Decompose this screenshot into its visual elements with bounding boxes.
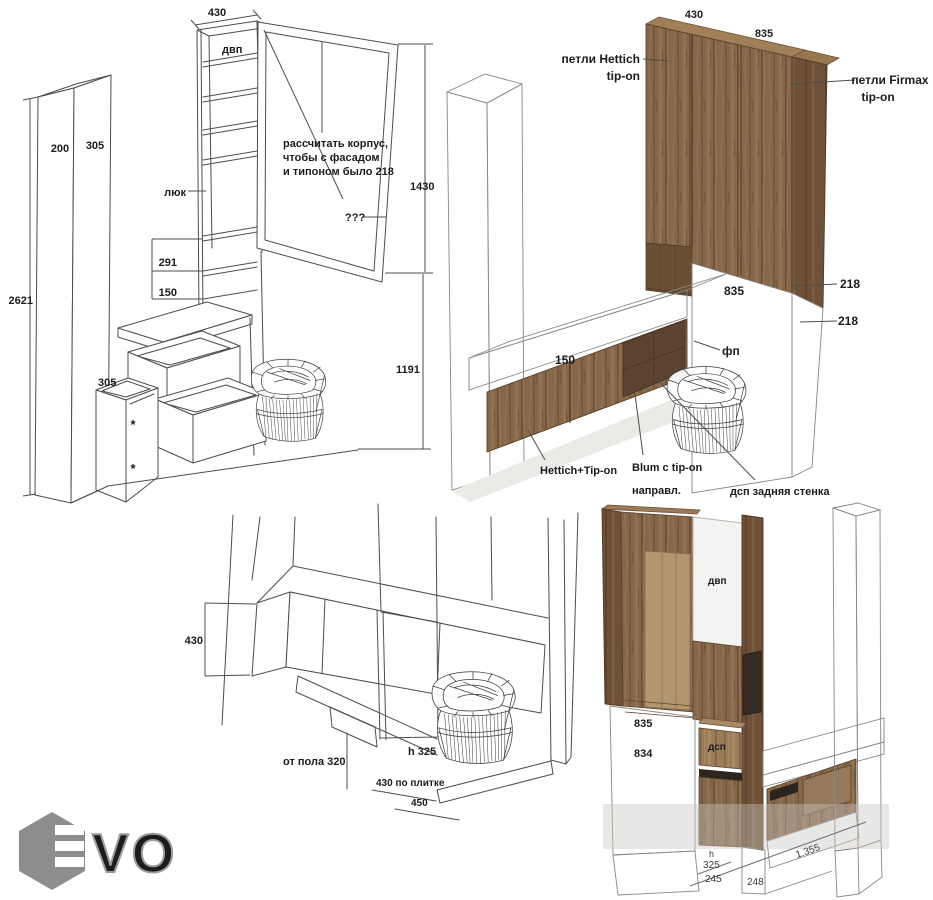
hinge-hettich-line1: петли Hettich (562, 52, 641, 66)
hinge-hettich-line2: tip-on (607, 69, 640, 83)
back-note-label: дсп задняя стенка (730, 486, 830, 498)
dim-150-label: 150 (555, 353, 575, 367)
dim-834-side-label: 834 (634, 748, 653, 760)
view-sketch-front: 430 двп 200 305 люк 2621 291 150 рассчит… (9, 7, 435, 503)
furniture-drawing-sheet: 430 двп 200 305 люк 2621 291 150 рассчит… (0, 0, 933, 900)
dim-218-top-label: 218 (840, 277, 860, 291)
floor-edge (765, 871, 832, 894)
hinge-firmax-line2: tip-on (861, 90, 894, 104)
dim-150-label: 150 (159, 287, 177, 299)
note-line3: и типоном было 218 (283, 166, 394, 178)
dim-305-box-label: 305 (98, 377, 116, 389)
view-render-side: двп 835 834 дсп h 325 245 248 1.355 (602, 503, 889, 897)
dim-218-bottom-label: 218 (838, 314, 858, 328)
dim-430-top-label: 430 (208, 7, 226, 19)
dim-248-label: 248 (747, 877, 764, 888)
toilet-sketch-front (251, 359, 325, 441)
toilet-sketch-bottom (432, 672, 515, 764)
dsp-drawer-label: дсп (708, 742, 726, 753)
logo-e-bar-3 (55, 857, 84, 867)
slide-note-line1: Blum с tip-on (632, 462, 703, 474)
dim-835-top-label: 835 (755, 28, 773, 40)
logo-e-bar-2 (55, 841, 84, 851)
dim-200-label: 200 (51, 143, 69, 155)
h-letter-label: h (709, 849, 714, 859)
dim-2621-label: 2621 (9, 295, 33, 307)
logo-e-bar-1 (55, 825, 84, 835)
board-dvp-label: двп (222, 44, 242, 56)
dim-835-mid-label: 835 (724, 284, 744, 298)
dim-450-label: 450 (411, 798, 428, 809)
evo-logo: VO (19, 812, 177, 890)
dim-305-pillar-label: 305 (86, 140, 104, 152)
note-line1: рассчитать корпус, (283, 138, 388, 150)
tile-level-band (603, 804, 889, 849)
dim-1191-label: 1191 (396, 364, 420, 376)
filler-label: фп (722, 344, 740, 358)
h325-label: h 325 (408, 746, 436, 758)
hinge-firmax-line1: петли Firmax (851, 73, 928, 87)
slide-note-line2: направл. (632, 485, 681, 497)
floor-offset-label: от пола 320 (283, 756, 346, 768)
dim-1430-label: 1430 (410, 181, 434, 193)
dim-430-render-label: 430 (685, 9, 703, 21)
board-dvp-side-label: двп (708, 576, 727, 587)
toilet-render-front (667, 367, 746, 454)
hatch-label: люк (164, 187, 186, 199)
logo-letters: VO (92, 822, 177, 884)
view-render-front: 430 835 петли Hettich tip-on петли Firma… (447, 9, 929, 502)
dim-430-below (205, 603, 256, 676)
hinge-note-label: Hettich+Tip-on (540, 465, 617, 477)
dim-325-label: 325 (703, 860, 720, 871)
wardrobe-render (646, 17, 839, 308)
note-line2: чтобы с фасадом (283, 152, 380, 164)
dim-291-label: 291 (159, 257, 177, 269)
tile-note-label: 430 по плитке (376, 778, 445, 789)
dim-835-side-label: 835 (634, 718, 652, 730)
unknown-label: ??? (345, 212, 365, 224)
shelf-unit-sketch (152, 10, 269, 322)
drawing-canvas: 430 двп 200 305 люк 2621 291 150 рассчит… (0, 0, 933, 900)
dim-245-label: 245 (705, 874, 722, 885)
view-sketch-bottom: 430 от пола 320 h 325 430 по плитке 450 (185, 504, 578, 820)
dim-430-below-label: 430 (185, 635, 203, 647)
